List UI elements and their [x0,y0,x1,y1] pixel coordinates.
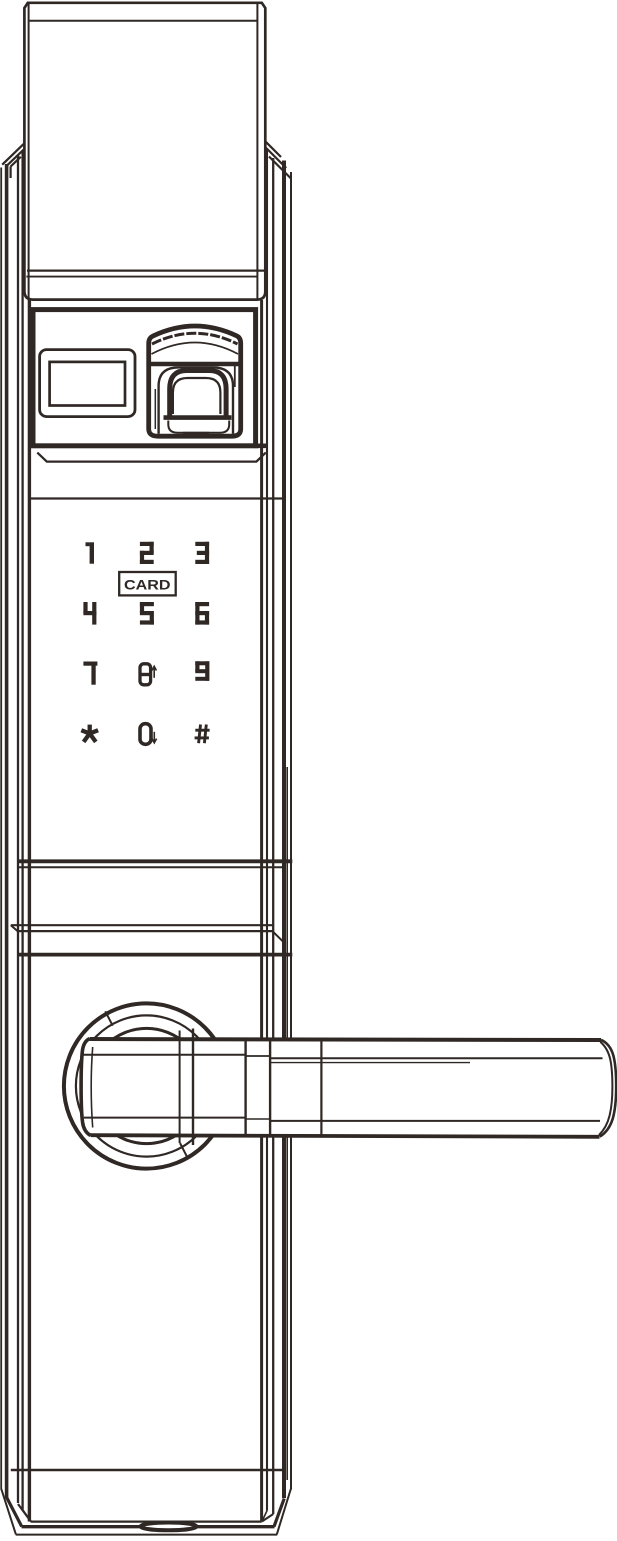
svg-text:CARD: CARD [124,577,171,593]
